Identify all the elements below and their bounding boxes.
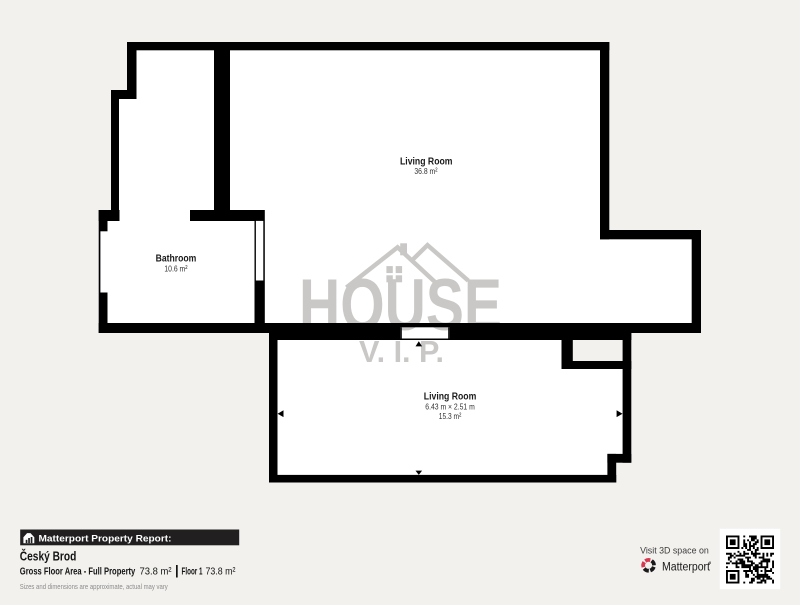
- svg-text:73.8 m²: 73.8 m²: [140, 567, 173, 578]
- svg-text:73.8 m²: 73.8 m²: [206, 567, 237, 578]
- svg-text:Visit 3D space on: Visit 3D space on: [640, 545, 709, 556]
- svg-text:Matterport Property Report:: Matterport Property Report:: [39, 534, 172, 544]
- svg-text:10.6 m²: 10.6 m²: [164, 264, 187, 274]
- svg-text:Gross Floor Area - Full Proper: Gross Floor Area - Full Property: [20, 567, 136, 578]
- svg-text:Český Brod: Český Brod: [20, 548, 77, 563]
- svg-text:Matterport: Matterport: [662, 561, 711, 573]
- svg-text:15.3 m²: 15.3 m²: [439, 411, 462, 421]
- svg-text:Living Room: Living Room: [424, 390, 477, 402]
- svg-text:36.8 m²: 36.8 m²: [414, 166, 437, 176]
- svg-text:6.43 m × 2.51 m: 6.43 m × 2.51 m: [425, 402, 475, 412]
- svg-text:Sizes and dimensions are appro: Sizes and dimensions are approximate, ac…: [20, 582, 168, 591]
- svg-text:V. I. P.: V. I. P.: [359, 334, 444, 369]
- svg-text:Floor 1: Floor 1: [182, 567, 203, 578]
- svg-text:Bathroom: Bathroom: [156, 252, 197, 264]
